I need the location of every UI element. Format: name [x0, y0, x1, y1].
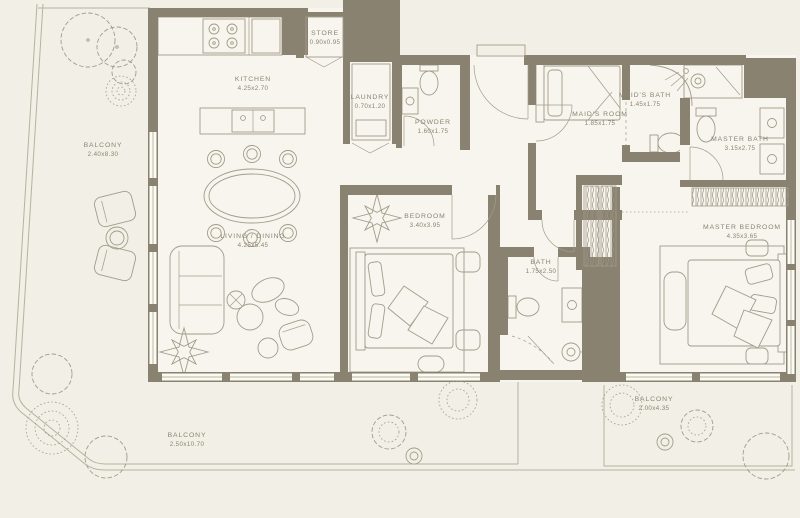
room-dims: 4.35x3.65 — [727, 233, 758, 240]
room-dims: 1.60x1.75 — [418, 128, 449, 135]
room-dims: 4.25x5.45 — [238, 242, 269, 249]
room-name: BALCONY — [168, 432, 207, 439]
room-dims: 2.50x10.70 — [170, 441, 205, 448]
wall-segment — [622, 152, 690, 162]
room-name: BEDROOM — [404, 213, 445, 220]
floorplan-drawing: BALCONY 2.40x8.30 KITCHEN 4.25x2.70 STOR… — [0, 0, 800, 518]
label-balcony-bottom: BALCONY 2.50x10.70 — [168, 432, 207, 448]
room-name: BALCONY — [635, 396, 674, 403]
room-name: MASTER BATH — [711, 136, 769, 143]
wall-segment — [148, 8, 308, 17]
wall-segment — [744, 58, 790, 98]
label-balcony-right: BALCONY 2.00x4.35 — [635, 396, 674, 412]
room-dims: 2.00x4.35 — [639, 405, 670, 412]
wall-segment — [488, 195, 500, 382]
room-name: LAUNDRY — [351, 94, 390, 101]
room-name: LIVING / DINING — [220, 233, 285, 240]
wall-segment — [460, 65, 470, 150]
room-name: STORE — [311, 30, 339, 37]
wall-segment — [296, 12, 344, 17]
room-name: POWDER — [415, 119, 451, 126]
room-name: MAID'S ROOM — [572, 111, 628, 118]
entry-threshold — [477, 45, 525, 56]
room-name: MAID'S BATH — [619, 92, 671, 99]
master-bed — [688, 254, 788, 352]
wall-segment — [528, 143, 536, 220]
wall-segment — [576, 175, 622, 185]
wall-segment — [500, 370, 582, 380]
wall-segment — [524, 55, 746, 65]
room-name: MASTER BEDROOM — [703, 224, 781, 231]
wall-segment — [500, 257, 508, 335]
room-dims: 0.90x0.95 — [310, 39, 341, 46]
wall-segment — [343, 0, 400, 62]
balcony-edges — [518, 382, 792, 466]
bedroom-bed — [356, 252, 453, 350]
room-dims: 2.40x8.30 — [88, 151, 119, 158]
stove-icon — [203, 19, 245, 53]
room-name: KITCHEN — [235, 76, 271, 83]
wall-segment — [343, 62, 350, 144]
wall-segment — [296, 17, 304, 58]
room-dims: 1.85x1.75 — [585, 120, 616, 127]
room-name: BALCONY — [84, 142, 123, 149]
wall-segment — [340, 195, 348, 382]
room-dims: 3.40x3.95 — [410, 222, 441, 229]
room-dims: 1.75x2.50 — [526, 268, 557, 275]
wall-segment — [396, 55, 470, 65]
wall-segment — [528, 65, 536, 105]
wall-segment — [688, 180, 790, 187]
room-dims: 1.45x1.75 — [630, 101, 661, 108]
wall-segment — [582, 257, 620, 382]
room-dims: 3.15x2.75 — [725, 145, 756, 152]
wall-segment — [496, 185, 500, 195]
wall-segment — [282, 17, 308, 55]
balcony-loungers — [93, 190, 137, 282]
label-balcony-left: BALCONY 2.40x8.30 — [84, 142, 123, 158]
wall-segment — [576, 185, 582, 270]
room-name: BATH — [530, 259, 551, 266]
wall-segment — [340, 185, 452, 195]
room-dims: 4.25x2.70 — [238, 85, 269, 92]
wall-segment — [396, 62, 402, 148]
floorplan-canvas: BALCONY 2.40x8.30 KITCHEN 4.25x2.70 STOR… — [0, 0, 800, 518]
room-dims: 0.70x1.20 — [355, 103, 386, 110]
